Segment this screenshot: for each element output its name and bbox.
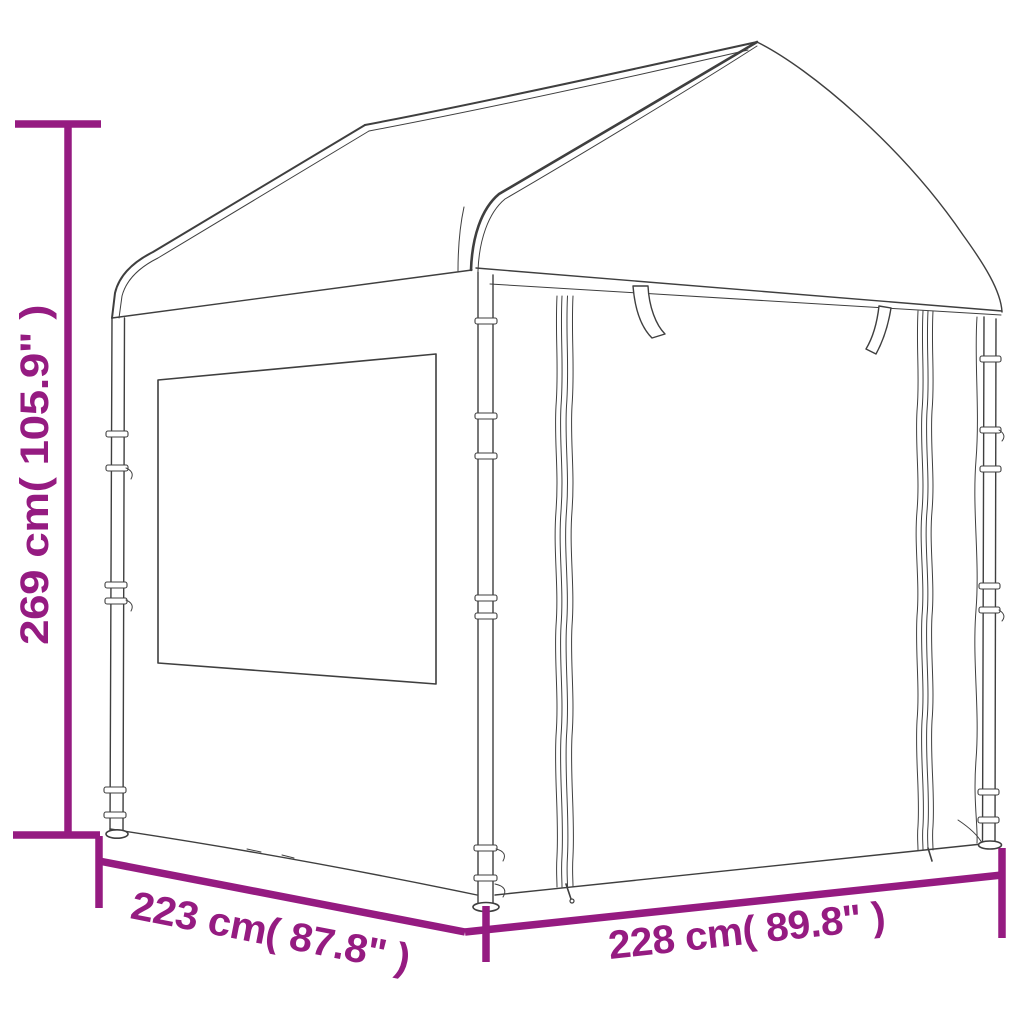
depth-dimension-label: 223 cm( 87.8" ) [127,884,413,981]
gazebo-dimension-drawing: 269 cm( 105.9" ) 223 cm( 87.8" ) 228 cm(… [0,0,1024,1024]
post-foot-plate [106,830,128,838]
height-dimension-label: 269 cm( 105.9" ) [13,305,57,645]
window [158,354,436,684]
product-dimension-diagram: 269 cm( 105.9" ) 223 cm( 87.8" ) 228 cm(… [0,0,1024,1024]
dimension-height: 269 cm( 105.9" ) [13,124,101,835]
post-foot-plate [979,841,1002,849]
gazebo-drawing [104,42,1004,912]
